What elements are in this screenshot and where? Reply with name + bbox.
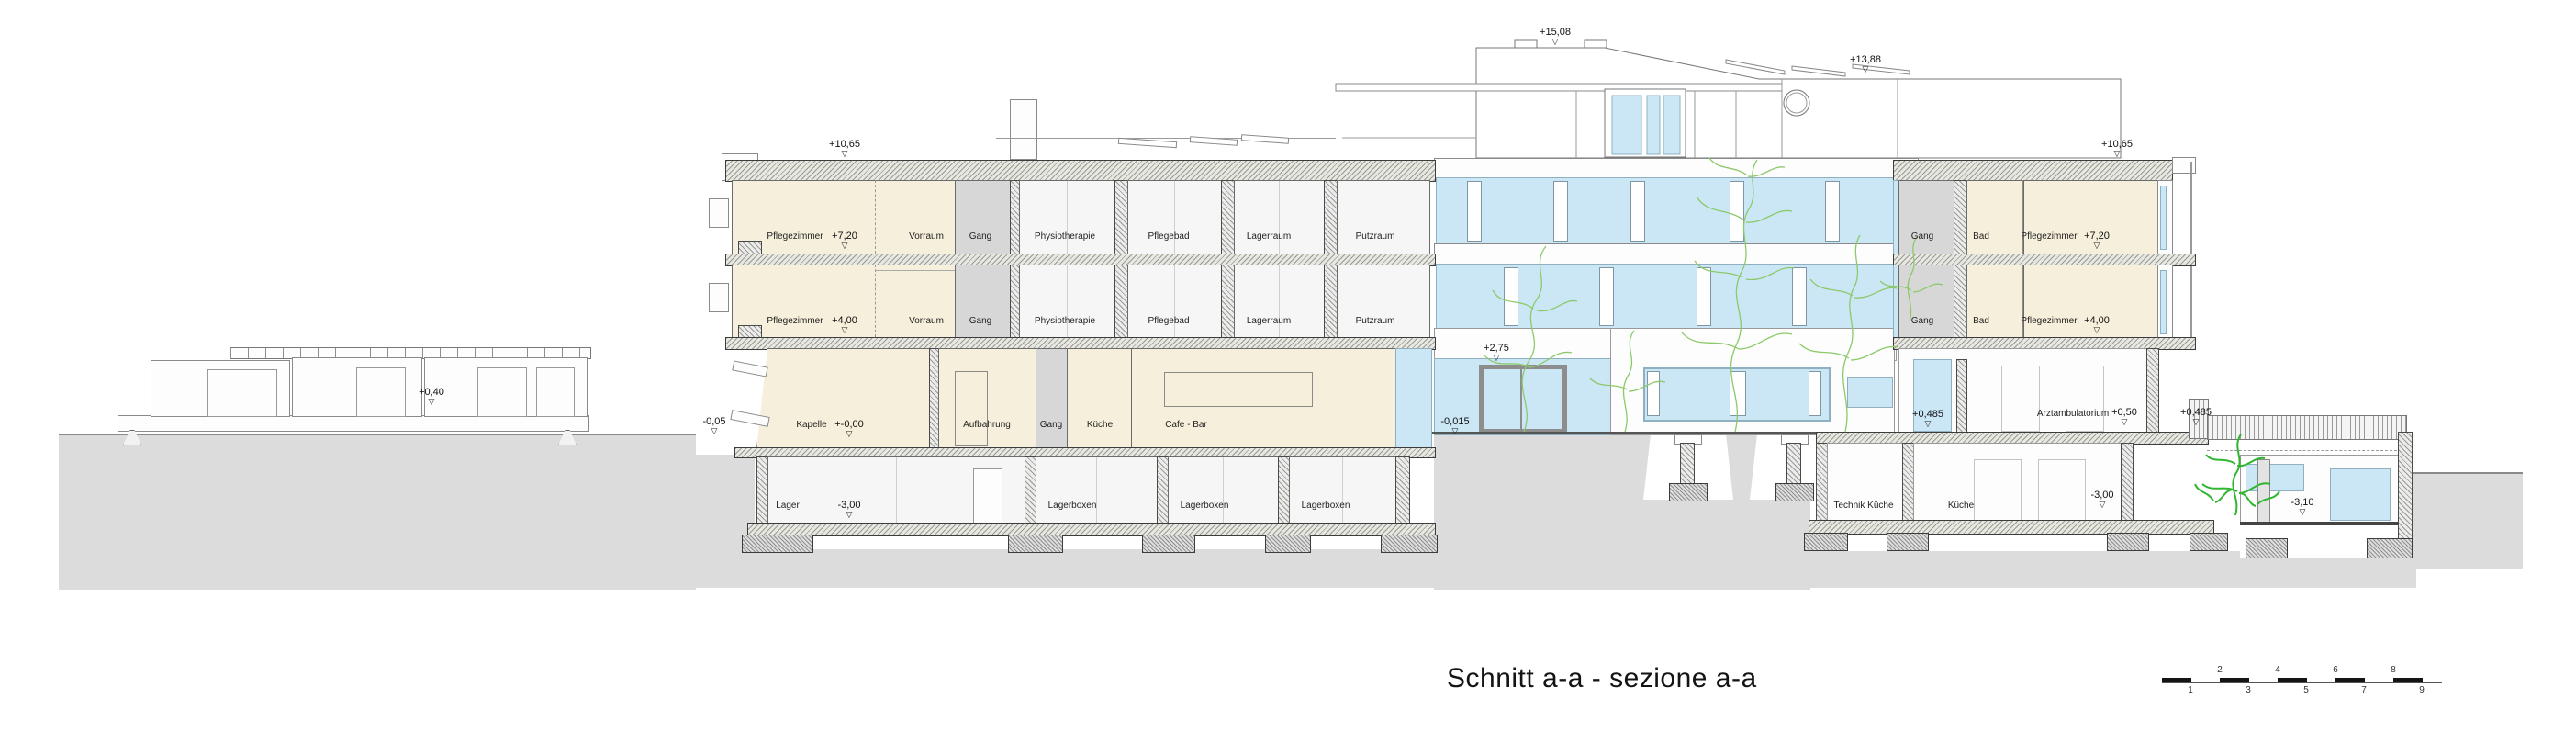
room-label: Bad	[1973, 232, 1989, 242]
level-marker: +7,20 ▽	[832, 231, 857, 249]
room-label: Küche	[1948, 501, 1974, 511]
room-lagerboxen-2	[1168, 456, 1280, 524]
terrain-under-garden	[2240, 558, 2416, 588]
room-lagerraum-f1	[1234, 265, 1326, 339]
room-label: Lagerraum	[1247, 232, 1291, 242]
garden-floor-line	[2240, 522, 2411, 525]
retaining-wall	[2398, 432, 2413, 540]
pier-shaft	[1786, 443, 1801, 485]
room-label: Pflegebad	[1148, 232, 1189, 242]
room-kueche-gf	[1067, 348, 1133, 449]
scale-bar-segment	[2220, 678, 2249, 682]
room-label: Aufbahrung	[963, 421, 1011, 430]
garden-glass-door	[2330, 468, 2391, 521]
room-label: Gang	[1040, 421, 1062, 430]
vorraum-ceiling-line	[875, 186, 955, 186]
room-pflegebad-f1	[1127, 265, 1223, 339]
footing	[2246, 538, 2288, 558]
aufbahrung-door	[955, 371, 988, 446]
footing	[1381, 535, 1438, 553]
room-bad-f2	[1966, 180, 2023, 255]
wall	[2146, 348, 2159, 434]
room-putzraum-f1	[1337, 265, 1430, 339]
level-triangle-icon: ▽	[711, 427, 718, 434]
interior-door-outline	[2001, 366, 2040, 432]
level-marker: +0,485 ▽	[1912, 410, 1943, 427]
level-triangle-icon: ▽	[429, 398, 435, 405]
section-drawing-sheet: Pflegezimmer Vorraum Gang Physiotherapie…	[0, 0, 2576, 755]
scale-number: 8	[2391, 665, 2396, 675]
level-triangle-icon: ▽	[1494, 354, 1500, 361]
interior-door-outline	[2066, 366, 2104, 432]
room-label: Pflegezimmer	[767, 317, 823, 326]
room-label: Lagerraum	[1247, 317, 1291, 326]
level-triangle-icon: ▽	[842, 326, 848, 333]
pavilion-platform	[118, 415, 589, 432]
kapelle-canopy-upper	[732, 360, 767, 377]
footing	[2107, 533, 2149, 551]
room-bad-f1	[1966, 265, 2023, 339]
room-gang-f2	[955, 180, 1012, 255]
gf-glass-door	[1395, 348, 1432, 449]
bay-window-f1	[709, 283, 729, 312]
room-label: Lagerboxen	[1302, 501, 1350, 511]
scale-number: 6	[2333, 665, 2338, 675]
room-lagerraum-f2	[1234, 180, 1326, 255]
room-label: Cafe - Bar	[1165, 421, 1207, 430]
level-marker: -3,00 ▽	[837, 501, 860, 518]
pier-shaft	[1680, 443, 1695, 485]
level-marker: -0,05 ▽	[702, 417, 725, 434]
room-label: Gang	[1911, 232, 1933, 242]
drawing-title: Schnitt a-a - sezione a-a	[1447, 663, 1757, 694]
room-label: Pflegebad	[1148, 317, 1189, 326]
pier-footing	[1775, 483, 1814, 501]
kitchen-unit-outline	[1974, 459, 2022, 522]
scale-number: 7	[2361, 685, 2367, 695]
solar-panel	[1241, 134, 1289, 144]
pavilion-door-3	[477, 367, 527, 417]
room-label: Lager	[776, 501, 800, 511]
level-triangle-icon: ▽	[1863, 65, 1869, 73]
room-label: Pflegezimmer	[2021, 317, 2077, 326]
scale-number: 1	[2188, 685, 2193, 695]
terrain-courtyard	[1434, 434, 1810, 590]
scale-bar-segment	[2162, 678, 2191, 682]
pier-footing	[1669, 483, 1708, 501]
room-label: Vorraum	[909, 317, 944, 326]
vorraum-ceiling-line	[875, 270, 955, 271]
footing	[742, 535, 813, 553]
room-lagerboxen-1	[1036, 456, 1159, 524]
level-marker: +0,40 ▽	[419, 388, 444, 405]
level-triangle-icon: ▽	[2122, 418, 2128, 425]
atrium-plants	[1460, 83, 1974, 441]
scale-bar-segment	[2278, 678, 2307, 682]
bay-window-f2	[709, 198, 729, 228]
footing	[2190, 533, 2228, 551]
scale-bar-segment	[2335, 678, 2365, 682]
roof-chimney	[1010, 99, 1037, 160]
terrain-far-right	[2411, 472, 2523, 569]
left-wing-basement-slab	[747, 523, 1436, 536]
scale-bar-line	[2162, 678, 2442, 683]
room-label: Putzraum	[1356, 317, 1395, 326]
room-putzraum-f2	[1337, 180, 1430, 255]
scale-number: 4	[2275, 665, 2280, 675]
courtyard-plant	[2190, 427, 2281, 519]
wall	[2121, 443, 2134, 522]
level-marker: +7,20 ▽	[2084, 231, 2110, 249]
level-marker: +0,50 ▽	[2111, 408, 2137, 425]
level-marker: +10,65 ▽	[2101, 140, 2133, 157]
room-label: Vorraum	[909, 232, 944, 242]
level-triangle-icon: ▽	[1452, 427, 1459, 434]
room-label: Gang	[969, 317, 991, 326]
pavilion-window	[536, 367, 575, 417]
pavilion-door-2	[356, 367, 406, 417]
room-label: Physiotherapie	[1035, 232, 1095, 242]
level-marker: +2,75 ▽	[1484, 344, 1509, 361]
level-triangle-icon: ▽	[2100, 501, 2106, 508]
room-label: Gang	[1911, 317, 1933, 326]
scale-number: 2	[2217, 665, 2223, 675]
level-marker: -3,00 ▽	[2090, 490, 2113, 508]
level-triangle-icon: ▽	[842, 150, 848, 157]
wall	[1395, 456, 1410, 524]
footing	[1008, 535, 1063, 553]
level-marker: +-0,00 ▽	[834, 420, 864, 437]
level-triangle-icon: ▽	[1552, 38, 1559, 45]
footing	[1887, 533, 1929, 551]
room-label: Physiotherapie	[1035, 317, 1095, 326]
room-label: Gang	[969, 232, 991, 242]
room-label: Arztambulatorium	[2037, 410, 2109, 419]
room-lagerboxen-3	[1289, 456, 1397, 524]
cafe-counter	[1164, 372, 1313, 407]
level-triangle-icon: ▽	[846, 511, 853, 518]
window-sliver	[2160, 186, 2167, 250]
left-wing-roof-slab	[725, 160, 1436, 182]
right-wing-parapet	[2172, 157, 2196, 174]
scale-number: 9	[2419, 685, 2425, 695]
level-triangle-icon: ▽	[2094, 326, 2100, 333]
solar-panel	[1118, 138, 1177, 148]
room-label: Technik Küche	[1833, 501, 1893, 511]
footing	[1265, 535, 1311, 553]
level-marker: +4,00 ▽	[832, 316, 857, 333]
footing	[1804, 533, 1848, 551]
level-marker: +10,65 ▽	[829, 140, 860, 157]
room-physiotherapie-f2	[1019, 180, 1116, 255]
level-marker: -3,10 ▽	[2290, 498, 2313, 515]
room-divider	[875, 265, 877, 337]
room-physiotherapie-f1	[1019, 265, 1116, 339]
terrain-left	[59, 434, 696, 590]
basement-door	[973, 468, 1002, 524]
level-triangle-icon: ▽	[1925, 420, 1932, 427]
level-marker: +4,00 ▽	[2084, 316, 2110, 333]
room-label: Pflegezimmer	[767, 232, 823, 242]
scale-number: 3	[2246, 685, 2251, 695]
level-triangle-icon: ▽	[842, 242, 848, 249]
room-label: Küche	[1087, 421, 1113, 430]
terrain-left-wing-edge	[694, 455, 755, 588]
scale-bar-segment	[2393, 678, 2423, 682]
level-triangle-icon: ▽	[846, 430, 853, 437]
footing	[2367, 538, 2413, 558]
level-triangle-icon: ▽	[2094, 242, 2100, 249]
room-gang-gf	[1036, 348, 1069, 449]
level-triangle-icon: ▽	[2193, 418, 2200, 425]
room-gang-f1	[955, 265, 1012, 339]
level-marker: +13,88 ▽	[1850, 55, 1881, 73]
scale-number: 5	[2303, 685, 2309, 695]
kitchen-unit-outline	[2038, 459, 2086, 522]
level-marker: +0,485 ▽	[2180, 408, 2212, 425]
room-label: Kapelle	[796, 421, 826, 430]
room-aufbahrung	[938, 348, 1037, 449]
room-label: Bad	[1973, 317, 1989, 326]
terrain-under-left-wing	[643, 549, 1441, 588]
scale-bar: 2 4 6 8 1 3 5 7 9	[2162, 665, 2456, 702]
level-marker: -0,015 ▽	[1440, 417, 1469, 434]
window-sliver	[2160, 270, 2167, 334]
room-label: Putzraum	[1356, 232, 1395, 242]
room-label: Lagerboxen	[1048, 501, 1097, 511]
footing	[1142, 535, 1195, 553]
room-divider	[875, 180, 877, 254]
level-marker: +15,08 ▽	[1540, 28, 1571, 45]
level-triangle-icon: ▽	[2114, 150, 2121, 157]
terrain-under-annex	[1804, 551, 2240, 588]
room-pflegebad-f2	[1127, 180, 1223, 255]
room-label: Lagerboxen	[1181, 501, 1229, 511]
pavilion-door-1	[207, 369, 277, 417]
room-label: Pflegezimmer	[2021, 232, 2077, 242]
level-triangle-icon: ▽	[2300, 508, 2306, 515]
annex-basement-slab	[1809, 520, 2214, 535]
